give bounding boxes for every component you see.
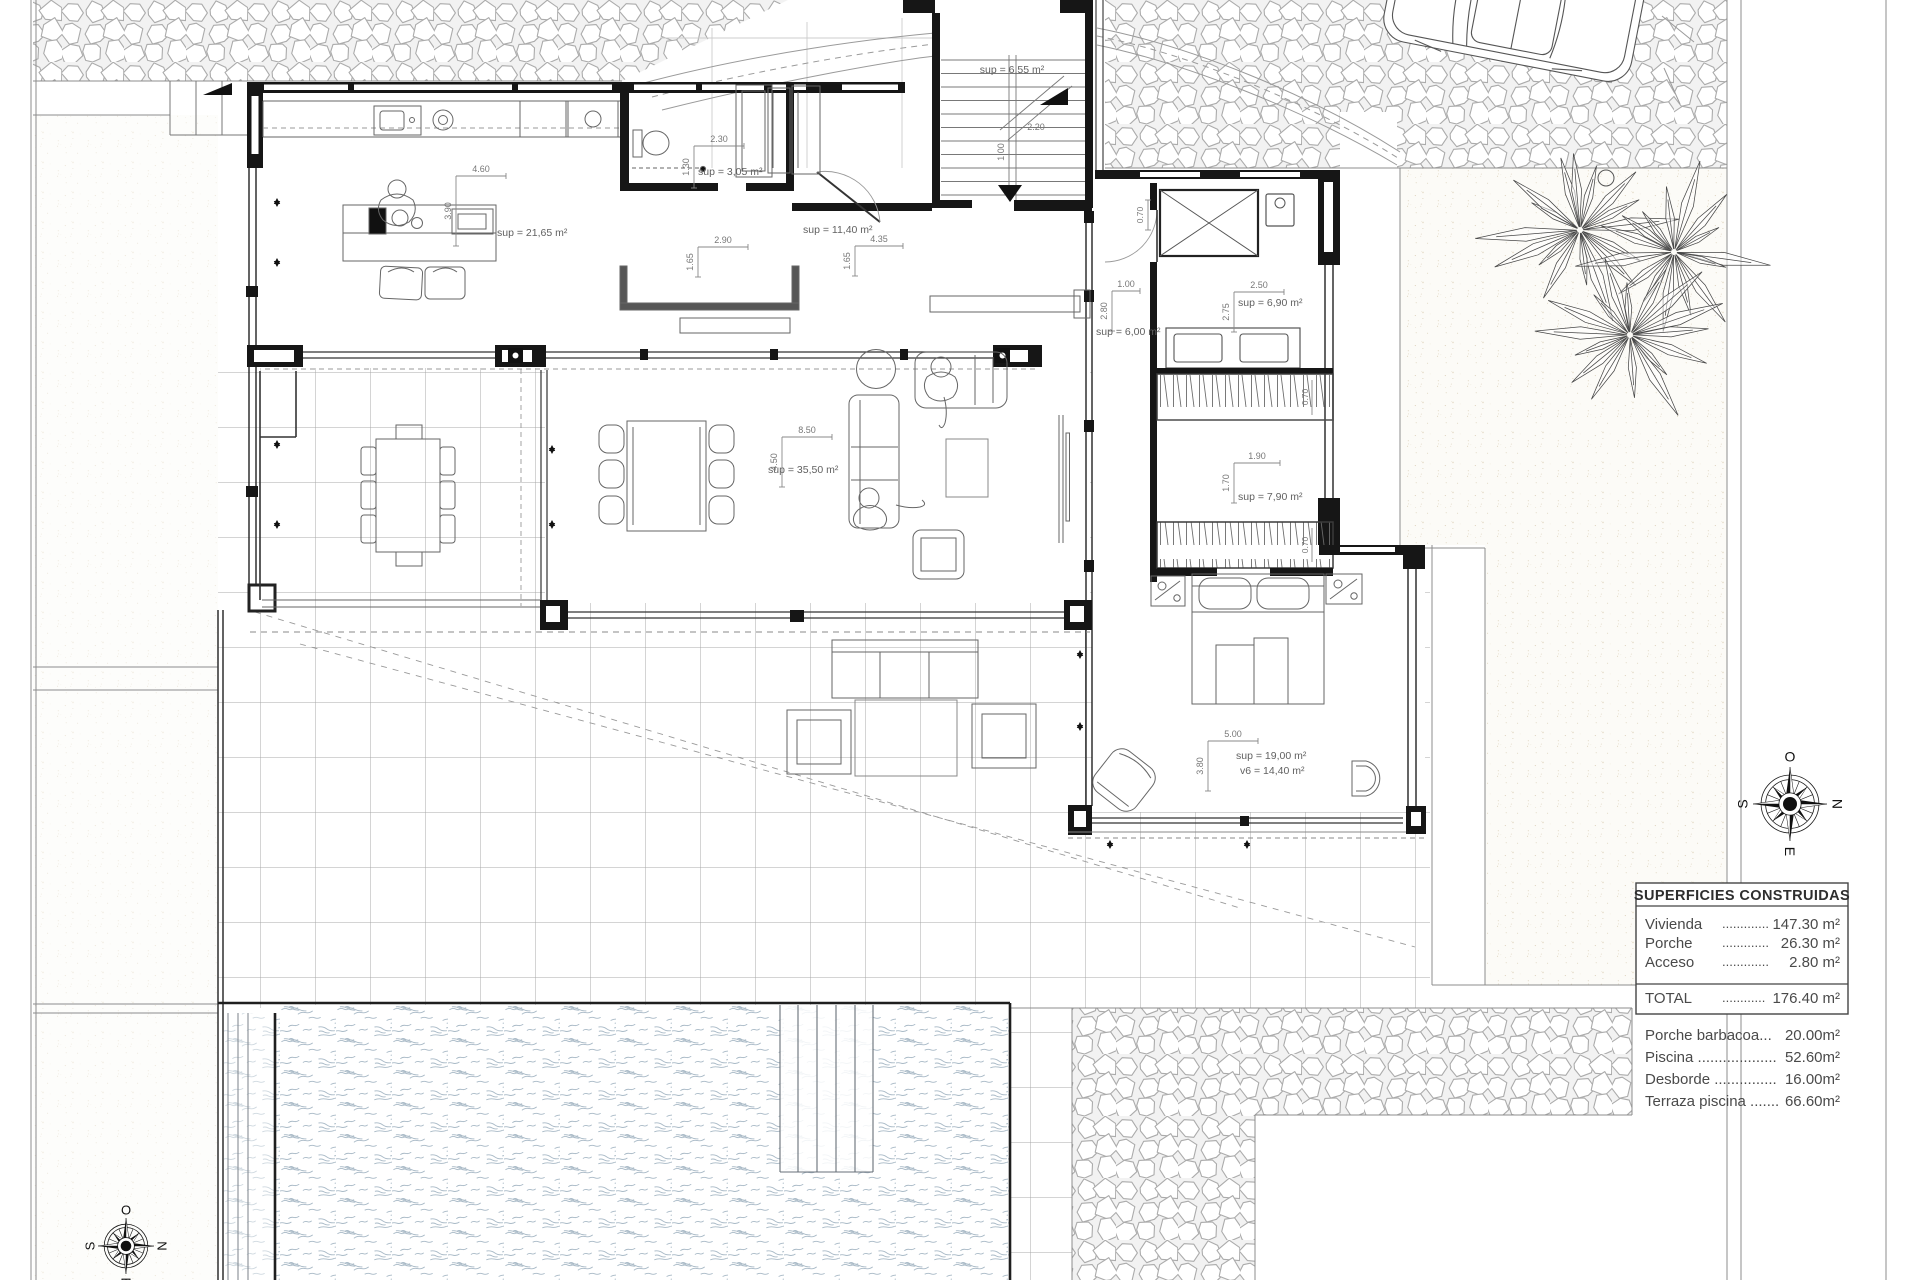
svg-text:Desborde ...............: Desborde ............... [1645, 1071, 1777, 1088]
svg-text:v6 = 14,40 m²: v6 = 14,40 m² [1240, 765, 1305, 777]
svg-text:SUPERFICIES CONSTRUIDAS: SUPERFICIES CONSTRUIDAS [1634, 888, 1850, 904]
svg-text:sup = 6,55 m²: sup = 6,55 m² [980, 64, 1045, 76]
svg-text:S: S [83, 1241, 98, 1250]
svg-text:TOTAL: TOTAL [1645, 990, 1692, 1007]
svg-text:66.60m²: 66.60m² [1785, 1093, 1840, 1110]
svg-text:2.75: 2.75 [1221, 303, 1231, 321]
svg-text:Acceso: Acceso [1645, 954, 1694, 971]
svg-text:26.30 m²: 26.30 m² [1781, 935, 1840, 952]
svg-text:.............: ............. [1722, 935, 1769, 950]
svg-text:............: ............ [1722, 990, 1765, 1005]
svg-text:2.90: 2.90 [714, 235, 732, 245]
svg-text:5.00: 5.00 [1224, 729, 1242, 739]
svg-text:4.35: 4.35 [870, 234, 888, 244]
svg-text:1.65: 1.65 [685, 253, 695, 271]
svg-text:2.20: 2.20 [1027, 122, 1045, 132]
svg-text:sup = 19,00 m²: sup = 19,00 m² [1236, 750, 1307, 762]
svg-text:sup = 11,40 m²: sup = 11,40 m² [803, 224, 873, 236]
svg-text:sup = 21,65 m²: sup = 21,65 m² [497, 227, 568, 239]
svg-text:52.60m²: 52.60m² [1785, 1049, 1840, 1066]
svg-text:4.60: 4.60 [472, 164, 490, 174]
svg-text:.............: ............. [1722, 916, 1769, 931]
svg-text:0.70: 0.70 [1300, 388, 1310, 405]
svg-text:8.50: 8.50 [798, 425, 816, 435]
svg-text:Piscina ...................: Piscina ................... [1645, 1049, 1777, 1066]
svg-text:1.70: 1.70 [1221, 474, 1231, 492]
svg-text:sup = 6,00 m²: sup = 6,00 m² [1096, 326, 1161, 338]
svg-text:1.00: 1.00 [996, 143, 1006, 161]
svg-text:2.30: 2.30 [710, 134, 728, 144]
svg-text:3.90: 3.90 [443, 202, 453, 220]
svg-text:Porche barbacoa...: Porche barbacoa... [1645, 1027, 1772, 1044]
svg-text:1.30: 1.30 [681, 158, 691, 176]
svg-text:E: E [1782, 847, 1798, 856]
svg-text:N: N [154, 1241, 169, 1250]
svg-text:sup = 6,90 m²: sup = 6,90 m² [1238, 297, 1303, 309]
svg-text:S: S [1735, 799, 1751, 808]
svg-text:176.40 m²: 176.40 m² [1772, 990, 1840, 1007]
svg-text:sup = 7,90 m²: sup = 7,90 m² [1238, 491, 1303, 503]
svg-text:4.50: 4.50 [769, 453, 779, 471]
svg-text:0.70: 0.70 [1300, 536, 1310, 553]
svg-text:.............: ............. [1722, 954, 1769, 969]
svg-text:2.80 m²: 2.80 m² [1789, 954, 1840, 971]
svg-text:O: O [121, 1203, 131, 1218]
svg-text:Terraza piscina .......: Terraza piscina ....... [1645, 1093, 1779, 1110]
svg-text:N: N [1830, 799, 1846, 809]
svg-text:3.80: 3.80 [1195, 757, 1205, 775]
svg-text:1.00: 1.00 [1117, 279, 1135, 289]
svg-text:2.50: 2.50 [1250, 280, 1268, 290]
svg-text:Vivienda: Vivienda [1645, 916, 1703, 933]
svg-text:20.00m²: 20.00m² [1785, 1027, 1840, 1044]
svg-text:Porche: Porche [1645, 935, 1693, 952]
svg-text:16.00m²: 16.00m² [1785, 1071, 1840, 1088]
svg-text:0.70: 0.70 [1135, 206, 1145, 223]
svg-text:147.30 m²: 147.30 m² [1772, 916, 1840, 933]
svg-text:sup = 3,05 m²: sup = 3,05 m² [698, 166, 763, 178]
svg-text:1.90: 1.90 [1248, 451, 1266, 461]
svg-text:2.80: 2.80 [1099, 302, 1109, 320]
svg-text:1.65: 1.65 [842, 252, 852, 270]
svg-text:O: O [1785, 749, 1796, 765]
